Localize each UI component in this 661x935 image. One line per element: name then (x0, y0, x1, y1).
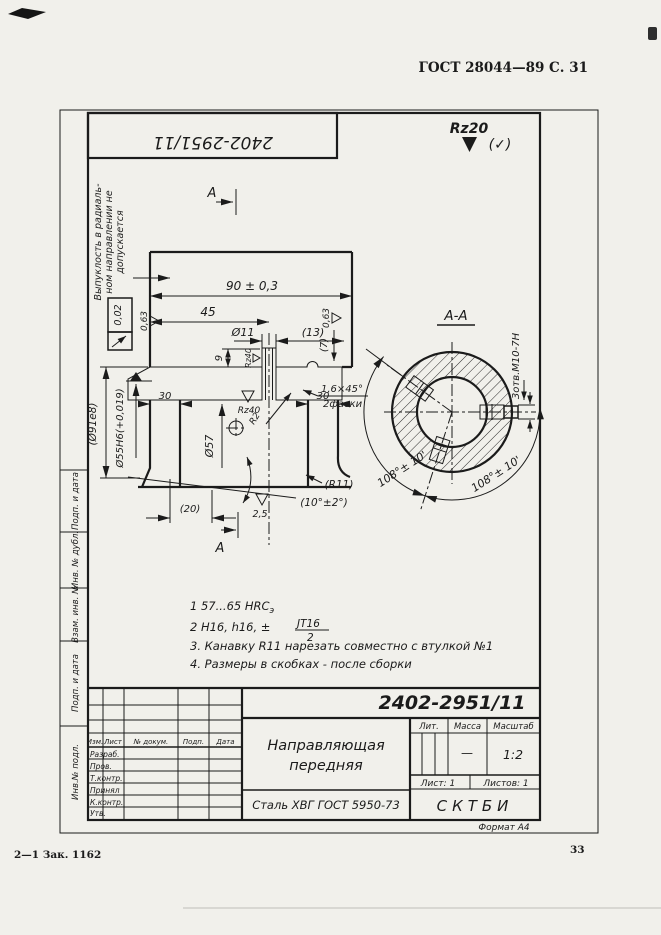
page-number: 33 (570, 844, 585, 856)
general-roughness: Rz20 (✓) (450, 121, 512, 153)
note-2-numerator: JT16 (295, 618, 320, 630)
note-3: 3. Канавку R11 нарезать совместно с втул… (190, 639, 493, 653)
roughness-063-right: 0,63 (322, 308, 332, 328)
dim-r11: (R11) (325, 479, 354, 491)
tolerance-frame: 0,02 (108, 298, 132, 350)
note-4: 4. Размеры в скобках - после сборки (190, 657, 412, 671)
sheets-label: Листов: 1 (482, 779, 528, 789)
dim-13: (13) (302, 326, 325, 339)
sheet-label: Лист: 1 (420, 779, 455, 789)
margin-label-podp2: Подп. и дата (71, 654, 81, 712)
scanned-drawing-page: ГОСТ 28044—89 С. 31 2—1 Зак. 1162 33 Под… (0, 0, 661, 935)
section-marker-bottom: А (215, 512, 238, 556)
lit-header: Лит. (418, 722, 439, 732)
row-tkontr: Т.контр. (90, 774, 123, 783)
section-marker-top: А (207, 186, 236, 215)
part-name-line1: Направляющая (267, 738, 385, 754)
section-view-aa: А-А 3отв.М10-7Н 108°± 10' 108°± 10' (364, 308, 540, 512)
mass-header: Масса (454, 722, 481, 732)
material: Сталь ХВГ ГОСТ 5950-73 (252, 798, 400, 812)
roughness-rz40-hole: Rz40 (244, 348, 253, 368)
row-prov: Пров. (90, 762, 112, 771)
right-cells: Лит. Масса Масштаб — 1:2 Лист: 1 Листов:… (410, 718, 540, 815)
scale-value: 1:2 (503, 747, 523, 762)
dim-angle10: (10°±2°) (300, 497, 348, 509)
row-kkontr: К.контр. (90, 798, 123, 807)
scale-header: Масштаб (493, 722, 533, 732)
top-stamp-number: 2402-2951/11 (153, 132, 273, 152)
runout-symbol-icon (112, 336, 126, 347)
margin-label-podp1: Подп. и дата (71, 472, 81, 530)
section-label-top: А (207, 186, 217, 201)
radial-note: Выпуклость в радиаль- ном направлении не… (93, 183, 170, 301)
doc-number: 2402-2951/11 (378, 692, 525, 714)
dim-9: 9 (214, 355, 225, 361)
margin-label-inv-dubl: Инв. № дубл. (71, 531, 81, 589)
row-utv: Утв. (90, 809, 106, 818)
title-block: Изм. Лист № докум. Подп. Дата Разраб. Пр… (87, 688, 540, 833)
col-doc: № докум. (133, 738, 169, 746)
org-name: СКТБИ (437, 797, 514, 815)
section-label-bottom: А (215, 541, 225, 556)
row-razrab: Разраб. (90, 750, 119, 759)
holes-label: 3отв.М10-7Н (511, 332, 522, 399)
margin-label-inv-podl: Инв.№ подл. (71, 744, 81, 800)
radial-note-line1: Выпуклость в радиаль- (93, 183, 104, 301)
note-2: 2 Н16, h16, ± (190, 620, 270, 634)
dim-20: (20) (180, 504, 201, 515)
svg-text:1 57...65 HRCэ: 1 57...65 HRCэ (190, 599, 275, 616)
mass-value: — (461, 746, 473, 760)
drawing-svg: ГОСТ 28044—89 С. 31 2—1 Зак. 1162 33 Под… (0, 0, 661, 935)
roughness-triangle-icon (462, 137, 477, 152)
dim-55: Ø55Н6(+0,019) (114, 388, 126, 468)
dim-45: 45 (200, 305, 215, 319)
dim-7: (7) (319, 338, 330, 352)
col-podp: Подп. (183, 738, 204, 746)
dim-91: (Ø91е8) (87, 403, 99, 446)
page-footer-imprint: 2—1 Зак. 1162 (14, 849, 101, 861)
technical-notes: 1 57...65 HRCэ 2 Н16, h16, ± JT16 2 3. К… (190, 599, 493, 671)
dim-57: Ø57 (203, 435, 216, 459)
radial-note-line2: ном направлении не (104, 190, 115, 294)
page-header-gost: ГОСТ 28044—89 С. 31 (419, 60, 588, 76)
dim-90: 90 ± 0,3 (226, 279, 278, 293)
roughness-25: 2,5 (252, 509, 267, 520)
roughness-general-value: Rz20 (450, 121, 489, 137)
tolerance-value: 0,02 (113, 304, 124, 325)
radial-note-line3: допускается (115, 210, 126, 275)
margin-column: Подп. и дата Инв. № дубл. Взам. инв. № П… (60, 470, 88, 800)
signature-table: Изм. Лист № докум. Подп. Дата Разраб. Пр… (87, 688, 242, 820)
col-data: Дата (215, 738, 234, 746)
col-izm: Изм. (87, 738, 103, 746)
margin-label-vzam: Взам. инв. № (71, 585, 81, 643)
dim-30-right: 30 (317, 391, 330, 402)
angle-left: 108°± 10' (375, 448, 429, 490)
roughness-063-left: 0,63 (140, 311, 150, 331)
format-label: Формат А4 (478, 823, 530, 833)
view-title-aa: А-А (443, 308, 467, 324)
note-1: 1 57...65 HRC (190, 599, 270, 613)
top-stamp: 2402-2951/11 (88, 113, 337, 158)
roughness-tick: (✓) (489, 137, 512, 153)
row-prinyal: Принял (90, 786, 120, 795)
part-name-line2: передняя (289, 758, 363, 774)
dim-11: Ø11 (231, 326, 255, 339)
col-list: Лист (103, 738, 123, 746)
dim-30-left: 30 (159, 391, 172, 402)
note-1-sub: э (270, 606, 275, 616)
